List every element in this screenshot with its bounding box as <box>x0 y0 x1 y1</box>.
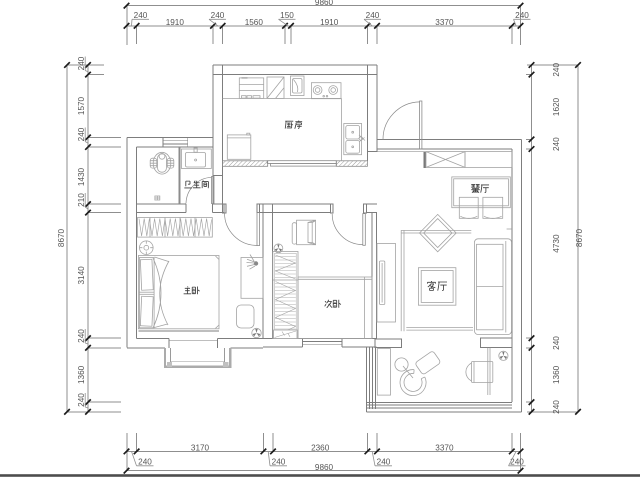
svg-text:9860: 9860 <box>315 0 334 7</box>
svg-text:2360: 2360 <box>311 444 330 453</box>
svg-text:240: 240 <box>552 400 561 414</box>
svg-text:3170: 3170 <box>191 444 210 453</box>
svg-text:9860: 9860 <box>315 463 334 472</box>
svg-text:150: 150 <box>280 11 294 20</box>
svg-text:1360: 1360 <box>552 365 561 384</box>
svg-text:210: 210 <box>77 193 86 207</box>
svg-text:240: 240 <box>377 458 391 467</box>
svg-text:240: 240 <box>211 11 225 20</box>
svg-text:240: 240 <box>77 127 86 141</box>
svg-text:240: 240 <box>272 458 286 467</box>
svg-text:240: 240 <box>134 11 148 20</box>
svg-text:4730: 4730 <box>552 234 561 253</box>
svg-text:240: 240 <box>552 336 561 350</box>
svg-text:240: 240 <box>552 63 561 77</box>
svg-text:1360: 1360 <box>77 365 86 384</box>
svg-text:8670: 8670 <box>575 228 584 247</box>
svg-text:3370: 3370 <box>435 444 454 453</box>
svg-text:240: 240 <box>366 11 380 20</box>
svg-text:240: 240 <box>138 458 152 467</box>
svg-text:1620: 1620 <box>552 97 561 116</box>
svg-text:3140: 3140 <box>77 266 86 285</box>
svg-text:240: 240 <box>515 11 529 20</box>
svg-text:1910: 1910 <box>320 18 339 27</box>
svg-text:1430: 1430 <box>77 167 86 186</box>
svg-text:1560: 1560 <box>245 18 264 27</box>
svg-text:240: 240 <box>552 137 561 151</box>
svg-text:1910: 1910 <box>166 18 185 27</box>
svg-text:3370: 3370 <box>435 18 454 27</box>
svg-text:8670: 8670 <box>57 228 66 247</box>
svg-text:240: 240 <box>77 56 86 70</box>
svg-text:240: 240 <box>77 329 86 343</box>
svg-text:240: 240 <box>77 393 86 407</box>
svg-text:1570: 1570 <box>77 96 86 115</box>
